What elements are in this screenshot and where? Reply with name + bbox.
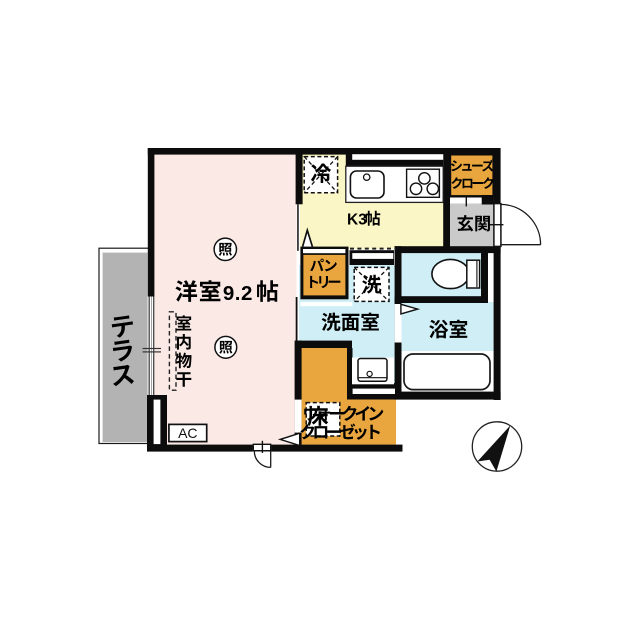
svg-text:9.2: 9.2: [223, 282, 253, 305]
svg-text:AC: AC: [178, 425, 197, 441]
svg-text:K3: K3: [347, 211, 367, 228]
